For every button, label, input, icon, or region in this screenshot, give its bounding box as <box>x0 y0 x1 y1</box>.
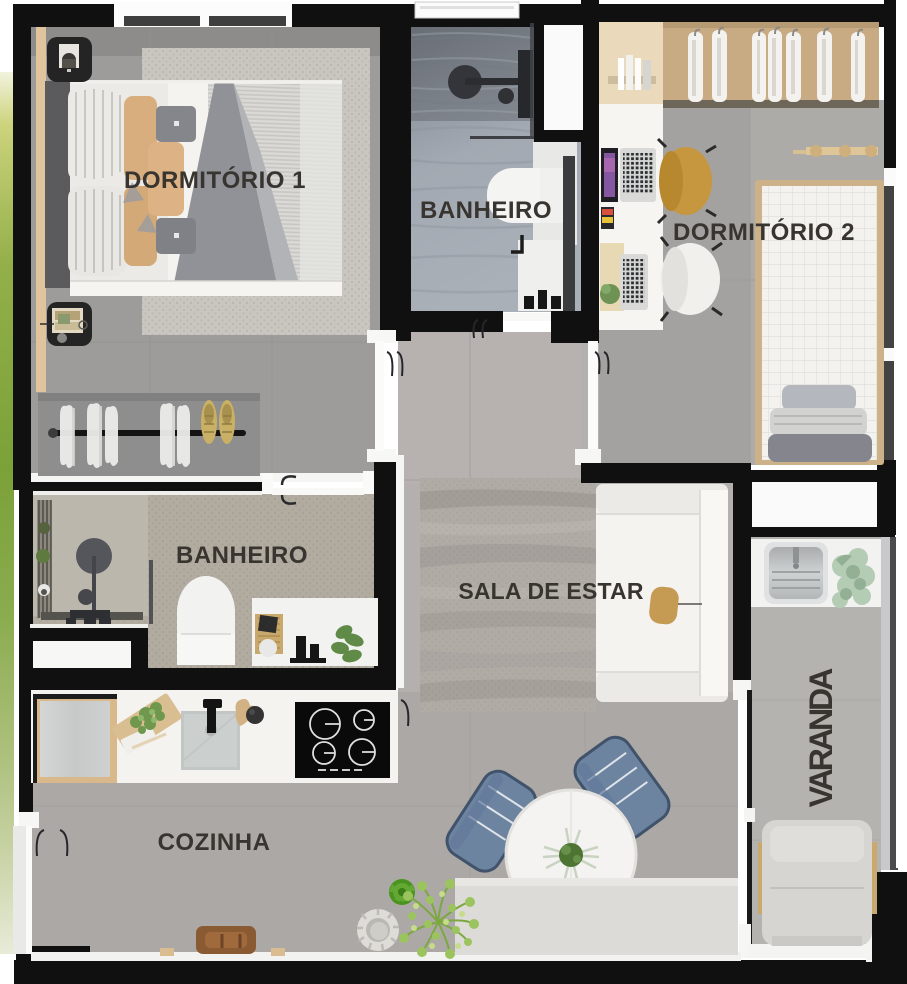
svg-text:DORMITÓRIO 2: DORMITÓRIO 2 <box>673 218 855 246</box>
svg-text:COZINHA: COZINHA <box>158 829 271 856</box>
svg-text:BANHEIRO: BANHEIRO <box>176 542 308 569</box>
svg-text:VARANDA: VARANDA <box>803 668 839 808</box>
svg-text:BANHEIRO: BANHEIRO <box>420 197 552 224</box>
svg-text:DORMITÓRIO 1: DORMITÓRIO 1 <box>124 166 306 194</box>
svg-text:SALA DE ESTAR: SALA DE ESTAR <box>458 578 644 604</box>
